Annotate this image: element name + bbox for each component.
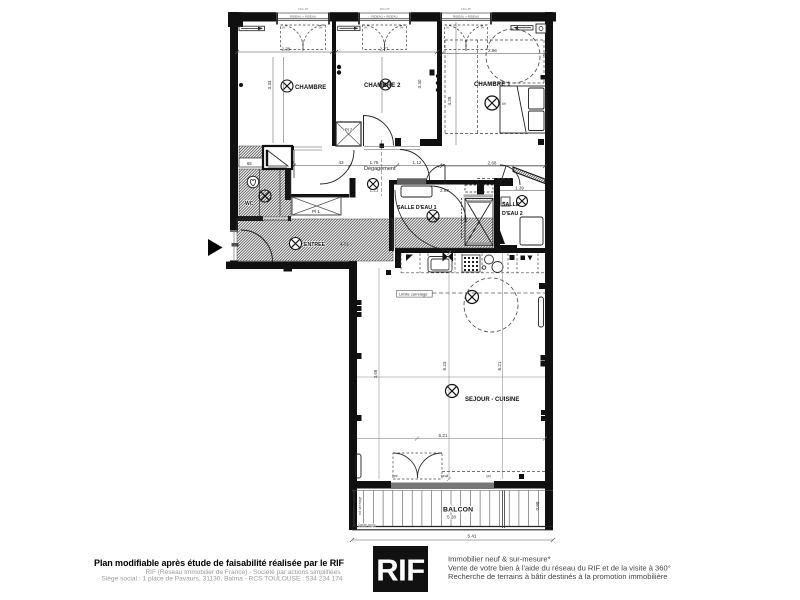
svg-text:1.21: 1.21 xyxy=(370,188,379,193)
svg-text:2.77: 2.77 xyxy=(380,47,389,52)
svg-text:ENTREE: ENTREE xyxy=(304,242,326,248)
svg-text:Pl 1: Pl 1 xyxy=(312,209,320,214)
svg-text:RIDEAU + RIDEAU: RIDEAU + RIDEAU xyxy=(290,14,316,18)
svg-text:3.68: 3.68 xyxy=(373,369,378,378)
svg-text:160+95: 160+95 xyxy=(379,7,389,11)
svg-text:1.75: 1.75 xyxy=(370,160,379,165)
svg-text:1M: 1M xyxy=(400,26,405,30)
svg-text:65: 65 xyxy=(247,161,252,166)
svg-text:160+95: 160+95 xyxy=(298,7,308,11)
svg-text:3.30: 3.30 xyxy=(417,79,422,88)
svg-text:6.21: 6.21 xyxy=(497,361,502,370)
svg-text:1M: 1M xyxy=(319,26,324,30)
svg-text:160+95: 160+95 xyxy=(461,7,471,11)
svg-text:RIDEAU + RIDEAU: RIDEAU + RIDEAU xyxy=(453,14,479,18)
svg-text:69: 69 xyxy=(502,102,506,106)
svg-text:BALCON: BALCON xyxy=(443,507,473,514)
svg-text:1M: 1M xyxy=(481,26,486,30)
svg-text:1M: 1M xyxy=(446,26,451,30)
svg-text:3.33: 3.33 xyxy=(267,80,272,89)
svg-text:D'EAU 2: D'EAU 2 xyxy=(502,211,523,217)
svg-text:43: 43 xyxy=(338,160,344,165)
svg-text:2PF: 2PF xyxy=(392,475,398,479)
svg-text:2.38: 2.38 xyxy=(282,47,291,52)
svg-text:sol carrelage: sol carrelage xyxy=(358,497,362,515)
svg-text:Pl 2: Pl 2 xyxy=(345,128,353,133)
svg-text:Plan modifiable après étude de: Plan modifiable après étude de faisabili… xyxy=(94,558,344,568)
svg-text:Siège social : 1 place de Pava: Siège social : 1 place de Pavaurs, 31130… xyxy=(101,576,343,583)
svg-text:1M: 1M xyxy=(364,26,369,30)
svg-text:SEJOUR - CUISINE: SEJOUR - CUISINE xyxy=(465,397,519,403)
svg-text:2.68: 2.68 xyxy=(488,161,497,166)
svg-text:CHAMBRE: CHAMBRE xyxy=(295,85,326,91)
svg-text:VR: VR xyxy=(486,475,491,479)
svg-text:WC: WC xyxy=(245,201,254,207)
svg-text:Immobilier neuf & sur-mesure*: Immobilier neuf & sur-mesure* xyxy=(448,555,551,564)
svg-text:Dégagement: Dégagement xyxy=(364,166,396,172)
svg-text:Recherche de terrains à bâtir: Recherche de terrains à bâtir destinés à… xyxy=(448,572,667,581)
svg-text:1.39: 1.39 xyxy=(515,186,524,191)
svg-text:Limite carrelage: Limite carrelage xyxy=(399,291,428,296)
svg-text:4.28: 4.28 xyxy=(447,96,452,105)
svg-text:1M: 1M xyxy=(282,26,287,30)
svg-text:5.41: 5.41 xyxy=(468,534,477,539)
svg-text:RIF: RIF xyxy=(376,553,424,588)
svg-text:4.71: 4.71 xyxy=(340,242,349,247)
svg-text:Garde corps: Garde corps xyxy=(358,523,376,527)
svg-text:seuil: seuil xyxy=(441,474,448,478)
svg-text:RIDEAU + RIDEAU: RIDEAU + RIDEAU xyxy=(371,14,397,18)
svg-text:1.12: 1.12 xyxy=(413,160,422,165)
svg-text:2.96: 2.96 xyxy=(488,48,497,53)
svg-text:0.98: 0.98 xyxy=(535,501,540,510)
svg-text:6.23: 6.23 xyxy=(442,361,447,370)
svg-text:5.21: 5.21 xyxy=(439,433,448,438)
svg-text:5.28: 5.28 xyxy=(447,515,456,520)
